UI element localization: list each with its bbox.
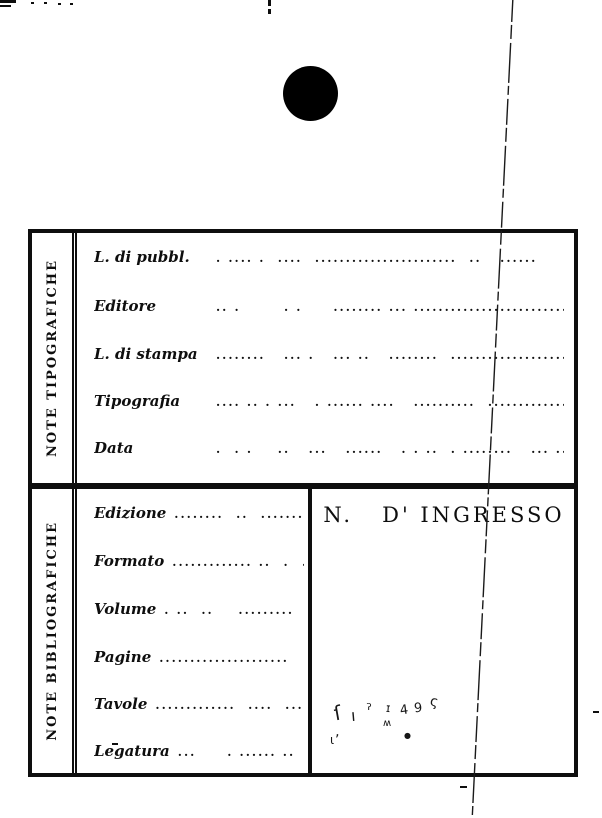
field-label-data: Data [94,439,216,457]
scan-artifact [593,711,599,713]
scan-artifact [44,2,47,4]
side-column-bibliografiche: NOTE BIBLIOGRAFICHE [32,489,77,773]
scan-artifact [70,3,73,5]
dotted-fill-line: ... . ...... .. [178,745,304,759]
dotted-fill-line: . . . .. ... ...... . . .. . ........ ..… [216,442,564,456]
handwritten-mark: 9 [413,701,423,717]
handwritten-mark: ● [404,731,411,740]
field-row: Formato ............. .. . . [94,552,304,576]
field-label-formato: Formato [94,552,164,570]
field-label-tipografia: Tipografia [94,392,216,410]
dotted-fill-line: .... .. . ... . ...... .... .......... .… [216,395,564,409]
field-row: Tipografia .... .. . ... . ...... .... .… [94,392,564,416]
handwritten-mark: ‚ [335,724,339,740]
dotted-fill-line: . .... . .... ....................... ..… [216,251,564,265]
field-row: L. di pubbl. . .... . .... .............… [94,248,564,272]
dotted-fill-line: ............. .. . . [172,555,304,569]
field-row: Volume . .. .. ......... [94,600,304,624]
catalog-card-table: NOTE TIPOGRAFICHE L. di pubbl. . .... . … [28,229,578,777]
handwritten-mark: ʍ [383,718,391,729]
scan-artifact [268,0,271,6]
field-label-l-di-stampa: L. di stampa [94,345,216,363]
dotted-fill-line: .. . . . ........ ... ..................… [216,300,564,314]
field-label-editore: Editore [94,297,216,315]
section-note-bibliografiche: NOTE BIBLIOGRAFICHE Edizione ........ ..… [32,489,574,773]
scan-artifact [0,5,11,7]
dotted-fill-line: ..................... [159,651,304,665]
field-label-edizione: Edizione [94,504,166,522]
scanned-catalog-card-page: NOTE TIPOGRAFICHE L. di pubbl. . .... . … [0,0,602,818]
scan-artifact [268,9,271,14]
field-row: Legatura ... . ...... .. [94,742,304,766]
scan-artifact [31,2,34,4]
dotted-fill-line: ............. .... ... [155,698,304,712]
section-note-tipografiche: NOTE TIPOGRAFICHE L. di pubbl. . .... . … [32,233,574,483]
ingresso-heading: N. D' INGRESSO [320,503,568,527]
field-label-tavole: Tavole [94,695,147,713]
dotted-fill-line: . .. .. ......... [164,603,304,617]
side-column-tipografiche: NOTE TIPOGRAFICHE [32,233,77,483]
field-row: Tavole ............. .... ... [94,695,304,719]
punch-hole-dot [283,66,338,121]
handwritten-mark: ɩ [330,733,334,747]
field-label-volume: Volume [94,600,156,618]
scan-artifact [58,3,61,5]
dotted-fill-line: ........ ... . ... .. ........ .........… [216,348,564,362]
field-row: Data . . . .. ... ...... . . .. . ......… [94,439,564,463]
vertical-cell-divider [308,489,312,773]
side-label-bibliografiche: NOTE BIBLIOGRAFICHE [45,521,60,741]
scan-artifact [460,786,467,788]
field-row: Edizione ........ .. ....... [94,504,304,528]
field-row: Editore .. . . . ........ ... ..........… [94,297,564,321]
field-label-legatura: Legatura [94,742,170,760]
scan-artifact [0,0,16,3]
field-row: L. di stampa ........ ... . ... .. .....… [94,345,564,369]
side-label-tipografiche: NOTE TIPOGRAFICHE [45,259,60,457]
dotted-fill-line: ........ .. ....... [174,507,304,521]
handwritten-mark: ˀ [366,700,372,719]
field-label-pagine: Pagine [94,648,151,666]
field-row: Pagine ..................... [94,648,304,672]
field-label-l-di-pubbl: L. di pubbl. [94,248,216,266]
